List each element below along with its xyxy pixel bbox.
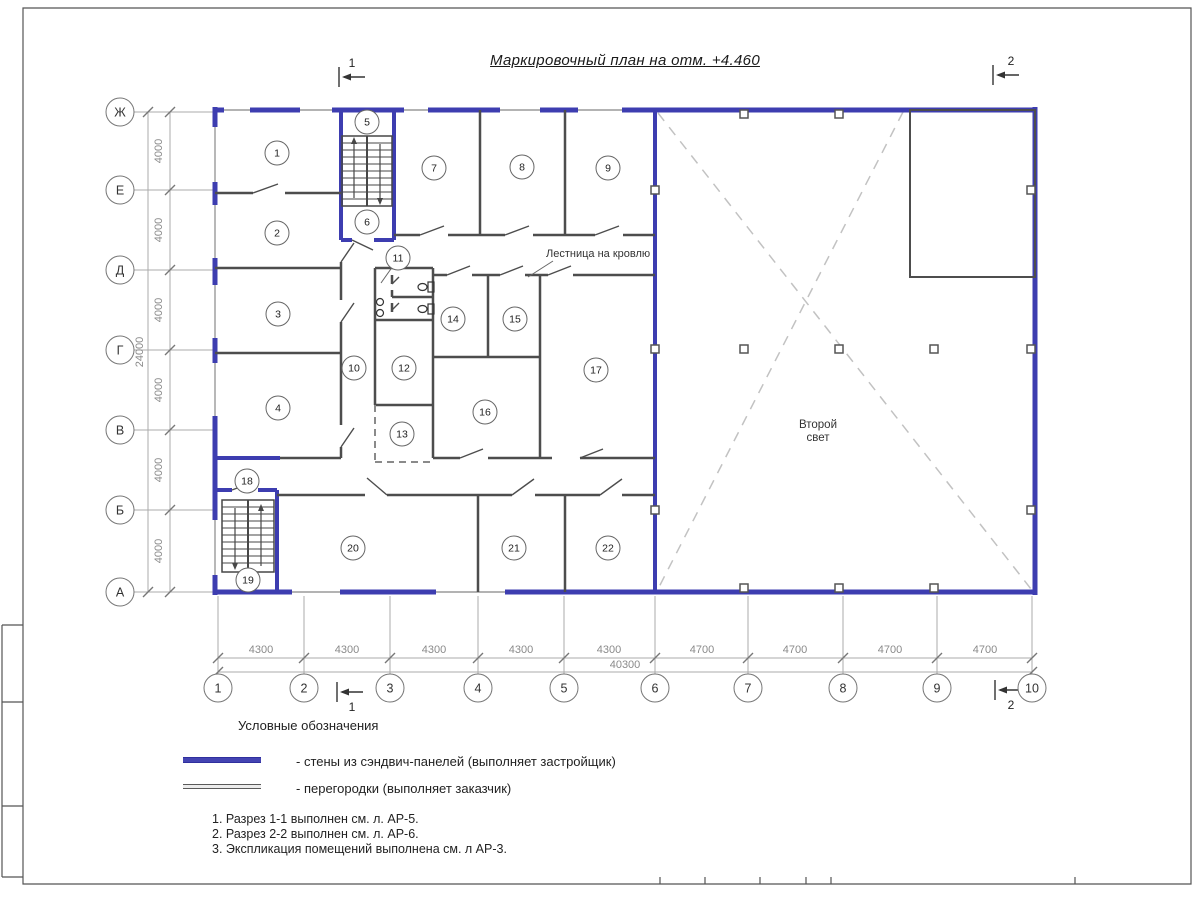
room-bubble: 17 [584,358,609,383]
axis-row: В [106,416,135,445]
legend-swatch-partition [183,784,261,789]
room-bubble: 11 [386,246,411,271]
dim-col: 4300 [597,644,621,656]
room-bubble: 4 [266,396,291,421]
dim-col: 4300 [509,644,533,656]
legend-heading: Условные обозначения [238,718,378,733]
stair-bottom [222,500,274,572]
axis-row: Ж [106,98,135,127]
dim-row: 4000 [153,218,165,242]
axis-col: 4 [464,674,493,703]
room-bubble: 3 [266,302,291,327]
section-2-top-number: 2 [1008,54,1015,68]
sandwich-walls [213,107,1037,595]
legend-label-sandwich-wall: - стены из сэндвич-панелей (выполняет за… [296,754,616,769]
wc-fixtures [377,282,435,317]
room-bubble: 5 [355,110,380,135]
stair-top [342,136,392,206]
note-2: 2. Разрез 2-2 выполнен см. л. АР-6. [212,827,419,842]
axis-col: 10 [1018,674,1047,703]
note-3: 3. Экспликация помещений выполнена см. л… [212,842,507,857]
room-bubble: 15 [503,307,528,332]
axis-col: 9 [923,674,952,703]
section-1-bottom-number: 1 [349,700,356,714]
drawing-title: Маркировочный план на отм. +4.460 [490,52,760,69]
door-leaves [232,184,622,495]
dim-row: 4000 [153,298,165,322]
dim-col-total: 40300 [610,659,641,671]
sheet-frame-lines [2,8,1191,884]
room-bubble: 18 [235,469,260,494]
axis-row: Б [106,496,135,525]
axis-col: 6 [641,674,670,703]
room-bubble: 21 [502,536,527,561]
room-bubble: 14 [441,307,466,332]
dim-col: 4300 [335,644,359,656]
stairs-to-roof-label: Лестница на кровлю [546,248,650,260]
dim-row-total: 24000 [134,337,146,368]
axis-col: 8 [829,674,858,703]
axis-col: 1 [204,674,233,703]
axis-row: Г [106,336,135,365]
legend-swatch-sandwich-wall [183,757,261,763]
axis-col: 2 [290,674,319,703]
section-1-top-number: 1 [349,56,356,70]
room-bubble: 16 [473,400,498,425]
drawing-sheet: Маркировочный план на отм. +4.460 1 2 1 … [0,0,1200,900]
dim-col: 4300 [249,644,273,656]
column-squares [651,110,1035,592]
dim-col: 4700 [690,644,714,656]
second-light-label: Второй свет [786,419,850,445]
window-gaps [211,106,622,596]
dim-row: 4000 [153,458,165,482]
axis-col: 3 [376,674,405,703]
room-bubble: 20 [341,536,366,561]
room-bubble: 6 [355,210,380,235]
room-bubble: 2 [265,221,290,246]
dim-col: 4700 [878,644,902,656]
room-bubble: 8 [510,155,535,180]
room-bubble: 10 [342,356,367,381]
dim-col: 4300 [422,644,446,656]
legend-label-partition: - перегородки (выполняет заказчик) [296,781,511,796]
room-bubble: 1 [265,141,290,166]
axis-row: Е [106,176,135,205]
axis-col: 7 [734,674,763,703]
dim-col: 4700 [783,644,807,656]
room-bubble: 12 [392,356,417,381]
axis-row: Д [106,256,135,285]
axis-row: А [106,578,135,607]
dim-row: 4000 [153,539,165,563]
room-bubble: 13 [390,422,415,447]
dim-col: 4700 [973,644,997,656]
note-1: 1. Разрез 1-1 выполнен см. л. АР-5. [212,812,419,827]
section-2-bottom-number: 2 [1008,698,1015,712]
room-bubble: 19 [236,568,261,593]
room-bubble: 7 [422,156,447,181]
partition-walls [215,110,1035,592]
axis-col: 5 [550,674,579,703]
dim-row: 4000 [153,139,165,163]
room-bubble: 9 [596,156,621,181]
void-diagonals [658,112,1031,589]
dim-row: 4000 [153,378,165,402]
axis-lines [133,112,1032,682]
room-bubble: 22 [596,536,621,561]
